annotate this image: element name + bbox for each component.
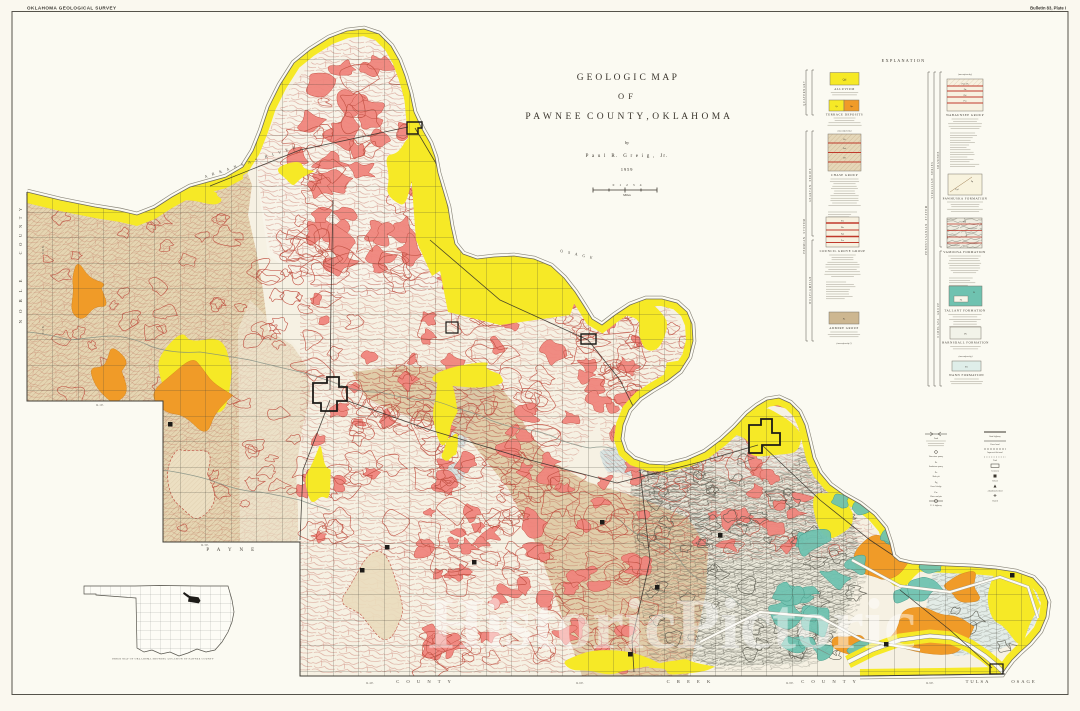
svg-text:R. 1 E.: R. 1 E. [96, 404, 104, 407]
svg-text:C O U N T Y: C O U N T Y [18, 206, 23, 255]
svg-text:TULSA: TULSA [966, 679, 991, 684]
svg-text:Miles: Miles [623, 193, 631, 197]
svg-text:0 1 2 3 4: 0 1 2 3 4 [613, 183, 642, 187]
svg-text:Pfo: Pfo [841, 220, 844, 223]
svg-text:PERMIAN SYSTEM: PERMIAN SYSTEM [803, 218, 806, 253]
svg-text:Pvu: Pvu [963, 222, 966, 224]
svg-text:Pfl: Pfl [843, 157, 846, 160]
svg-text:Water analysis: Water analysis [930, 496, 942, 498]
svg-text:(unconformity): (unconformity) [958, 73, 972, 76]
svg-text:C O U N T Y: C O U N T Y [396, 679, 454, 684]
svg-text:E X P L A N A T I O N: E X P L A N A T I O N [882, 58, 925, 63]
svg-text:P a u l R. G r e i g , Jr.: P a u l R. G r e i g , Jr. [586, 154, 669, 159]
svg-text:Fault: Fault [934, 438, 939, 440]
svg-text:Pgr: Pgr [841, 233, 844, 236]
svg-text:Pts: Pts [960, 300, 963, 302]
svg-text:Shale pit: Shale pit [932, 476, 939, 478]
svg-text:Pw: Pw [934, 491, 937, 494]
svg-text:N O B L E: N O B L E [18, 277, 23, 324]
svg-text:ALLUVIUM: ALLUVIUM [834, 87, 855, 91]
svg-text:Pro: Pro [841, 240, 844, 242]
svg-text:(unconformity): (unconformity) [838, 130, 852, 133]
svg-text:Cemetery: Cemetery [991, 471, 999, 473]
svg-text:VIRGILIAN SERIES: VIRGILIAN SERIES [931, 162, 934, 199]
svg-text:P A Y N E: P A Y N E [206, 548, 257, 553]
svg-text:Qts: Qts [850, 105, 853, 108]
svg-text:CHASE GROUP: CHASE GROUP [831, 173, 858, 177]
svg-text:R. 6 E.: R. 6 E. [576, 682, 584, 685]
svg-text:SHAWNEE: SHAWNEE [937, 151, 940, 169]
svg-text:R. 3 E.: R. 3 E. [201, 544, 209, 547]
svg-text:BARNSDALL FORMATION: BARNSDALL FORMATION [942, 341, 989, 345]
svg-text:C R E E K: C R E E K [667, 679, 714, 684]
svg-text:PENNSYLVANIAN SYSTEM: PENNSYLVANIAN SYSTEM [925, 205, 928, 255]
svg-text:GEARYAN SERIES: GEARYAN SERIES [809, 168, 812, 202]
svg-text:Abandoned school: Abandoned school [988, 490, 1003, 493]
svg-text:WABAUNSEE GROUP: WABAUNSEE GROUP [946, 113, 984, 117]
svg-text:Pwi: Pwi [843, 148, 847, 150]
svg-text:Limestone quarry: Limestone quarry [929, 455, 943, 458]
svg-text:Qt: Qt [835, 105, 838, 108]
svg-text:TALLANT FORMATION: TALLANT FORMATION [944, 309, 986, 313]
svg-text:P A W N E E C O U N T Y , O K: P A W N E E C O U N T Y , O K L A H O M … [525, 112, 730, 122]
svg-text:(unconformity): (unconformity) [959, 355, 973, 358]
svg-text:Sandstone quarry: Sandstone quarry [929, 465, 943, 468]
svg-text:C O U N T Y: C O U N T Y [801, 679, 859, 684]
svg-text:O F: O F [618, 91, 634, 101]
svg-text:COUNCIL GROVE GROUP: COUNCIL GROVE GROUP [820, 249, 866, 253]
svg-text:Paved road: Paved road [991, 444, 1000, 446]
svg-text:PAWHUSKA FORMATION: PAWHUSKA FORMATION [943, 197, 988, 201]
svg-text:Bulletin 83, Plate I: Bulletin 83, Plate I [1030, 6, 1066, 11]
svg-text:WANN FORMATION: WANN FORMATION [949, 373, 984, 377]
svg-text:Gravel dredge: Gravel dredge [930, 485, 941, 488]
svg-text:Qal: Qal [843, 79, 847, 82]
svg-text:Pbe: Pbe [841, 227, 844, 229]
svg-text:Pta: Pta [964, 89, 967, 91]
svg-text:T. 22 N.: T. 22 N. [42, 245, 45, 254]
svg-text:Pvm Ph: Pvm Ph [962, 84, 969, 86]
svg-text:Church: Church [992, 501, 998, 503]
svg-text:G E O L O G I C M A P: G E O L O G I C M A P [577, 73, 677, 83]
svg-text:OCHELATA GROUP: OCHELATA GROUP [937, 302, 940, 338]
svg-text:School: School [992, 481, 998, 483]
svg-text:U. S. highway: U. S. highway [930, 504, 941, 507]
svg-text:Pw: Pw [965, 366, 968, 369]
svg-text:OSAGE: OSAGE [1011, 679, 1036, 684]
svg-text:R. 4 E.: R. 4 E. [366, 682, 374, 685]
svg-text:T. 21 N.: T. 21 N. [42, 325, 45, 334]
svg-text:1959: 1959 [621, 167, 633, 172]
svg-text:Ppl: Ppl [956, 189, 959, 191]
svg-text:Ps: Ps [935, 461, 937, 464]
svg-text:TERRACE DEPOSITS: TERRACE DEPOSITS [826, 113, 863, 117]
svg-text:Pva: Pva [964, 101, 967, 103]
svg-text:Trail: Trail [993, 460, 997, 462]
svg-text:ADMIRE GROUP: ADMIRE GROUP [829, 326, 858, 330]
svg-text:by: by [625, 140, 629, 145]
svg-text:R. 9 E.: R. 9 E. [926, 682, 934, 685]
svg-text:State highway: State highway [989, 435, 1000, 438]
svg-text:HistoricPictoric: HistoricPictoric [428, 584, 916, 664]
svg-text:INDEX MAP OF OKLAHOMA SHOWING: INDEX MAP OF OKLAHOMA SHOWING LOCATION O… [112, 658, 214, 661]
svg-text:WOLFCAMPIAN: WOLFCAMPIAN [809, 276, 812, 304]
svg-text:OKLAHOMA GEOLOGICAL SURVEY: OKLAHOMA GEOLOGICAL SURVEY [27, 6, 116, 11]
svg-text:QUATERNARY: QUATERNARY [803, 80, 806, 105]
svg-text:(unconformity?): (unconformity?) [837, 342, 852, 345]
svg-text:Pbl: Pbl [964, 95, 967, 97]
svg-text:VAMOOSA FORMATION: VAMOOSA FORMATION [943, 250, 986, 254]
svg-text:Improved dirt road: Improved dirt road [987, 452, 1002, 454]
svg-text:R. 8 E.: R. 8 E. [786, 682, 794, 685]
